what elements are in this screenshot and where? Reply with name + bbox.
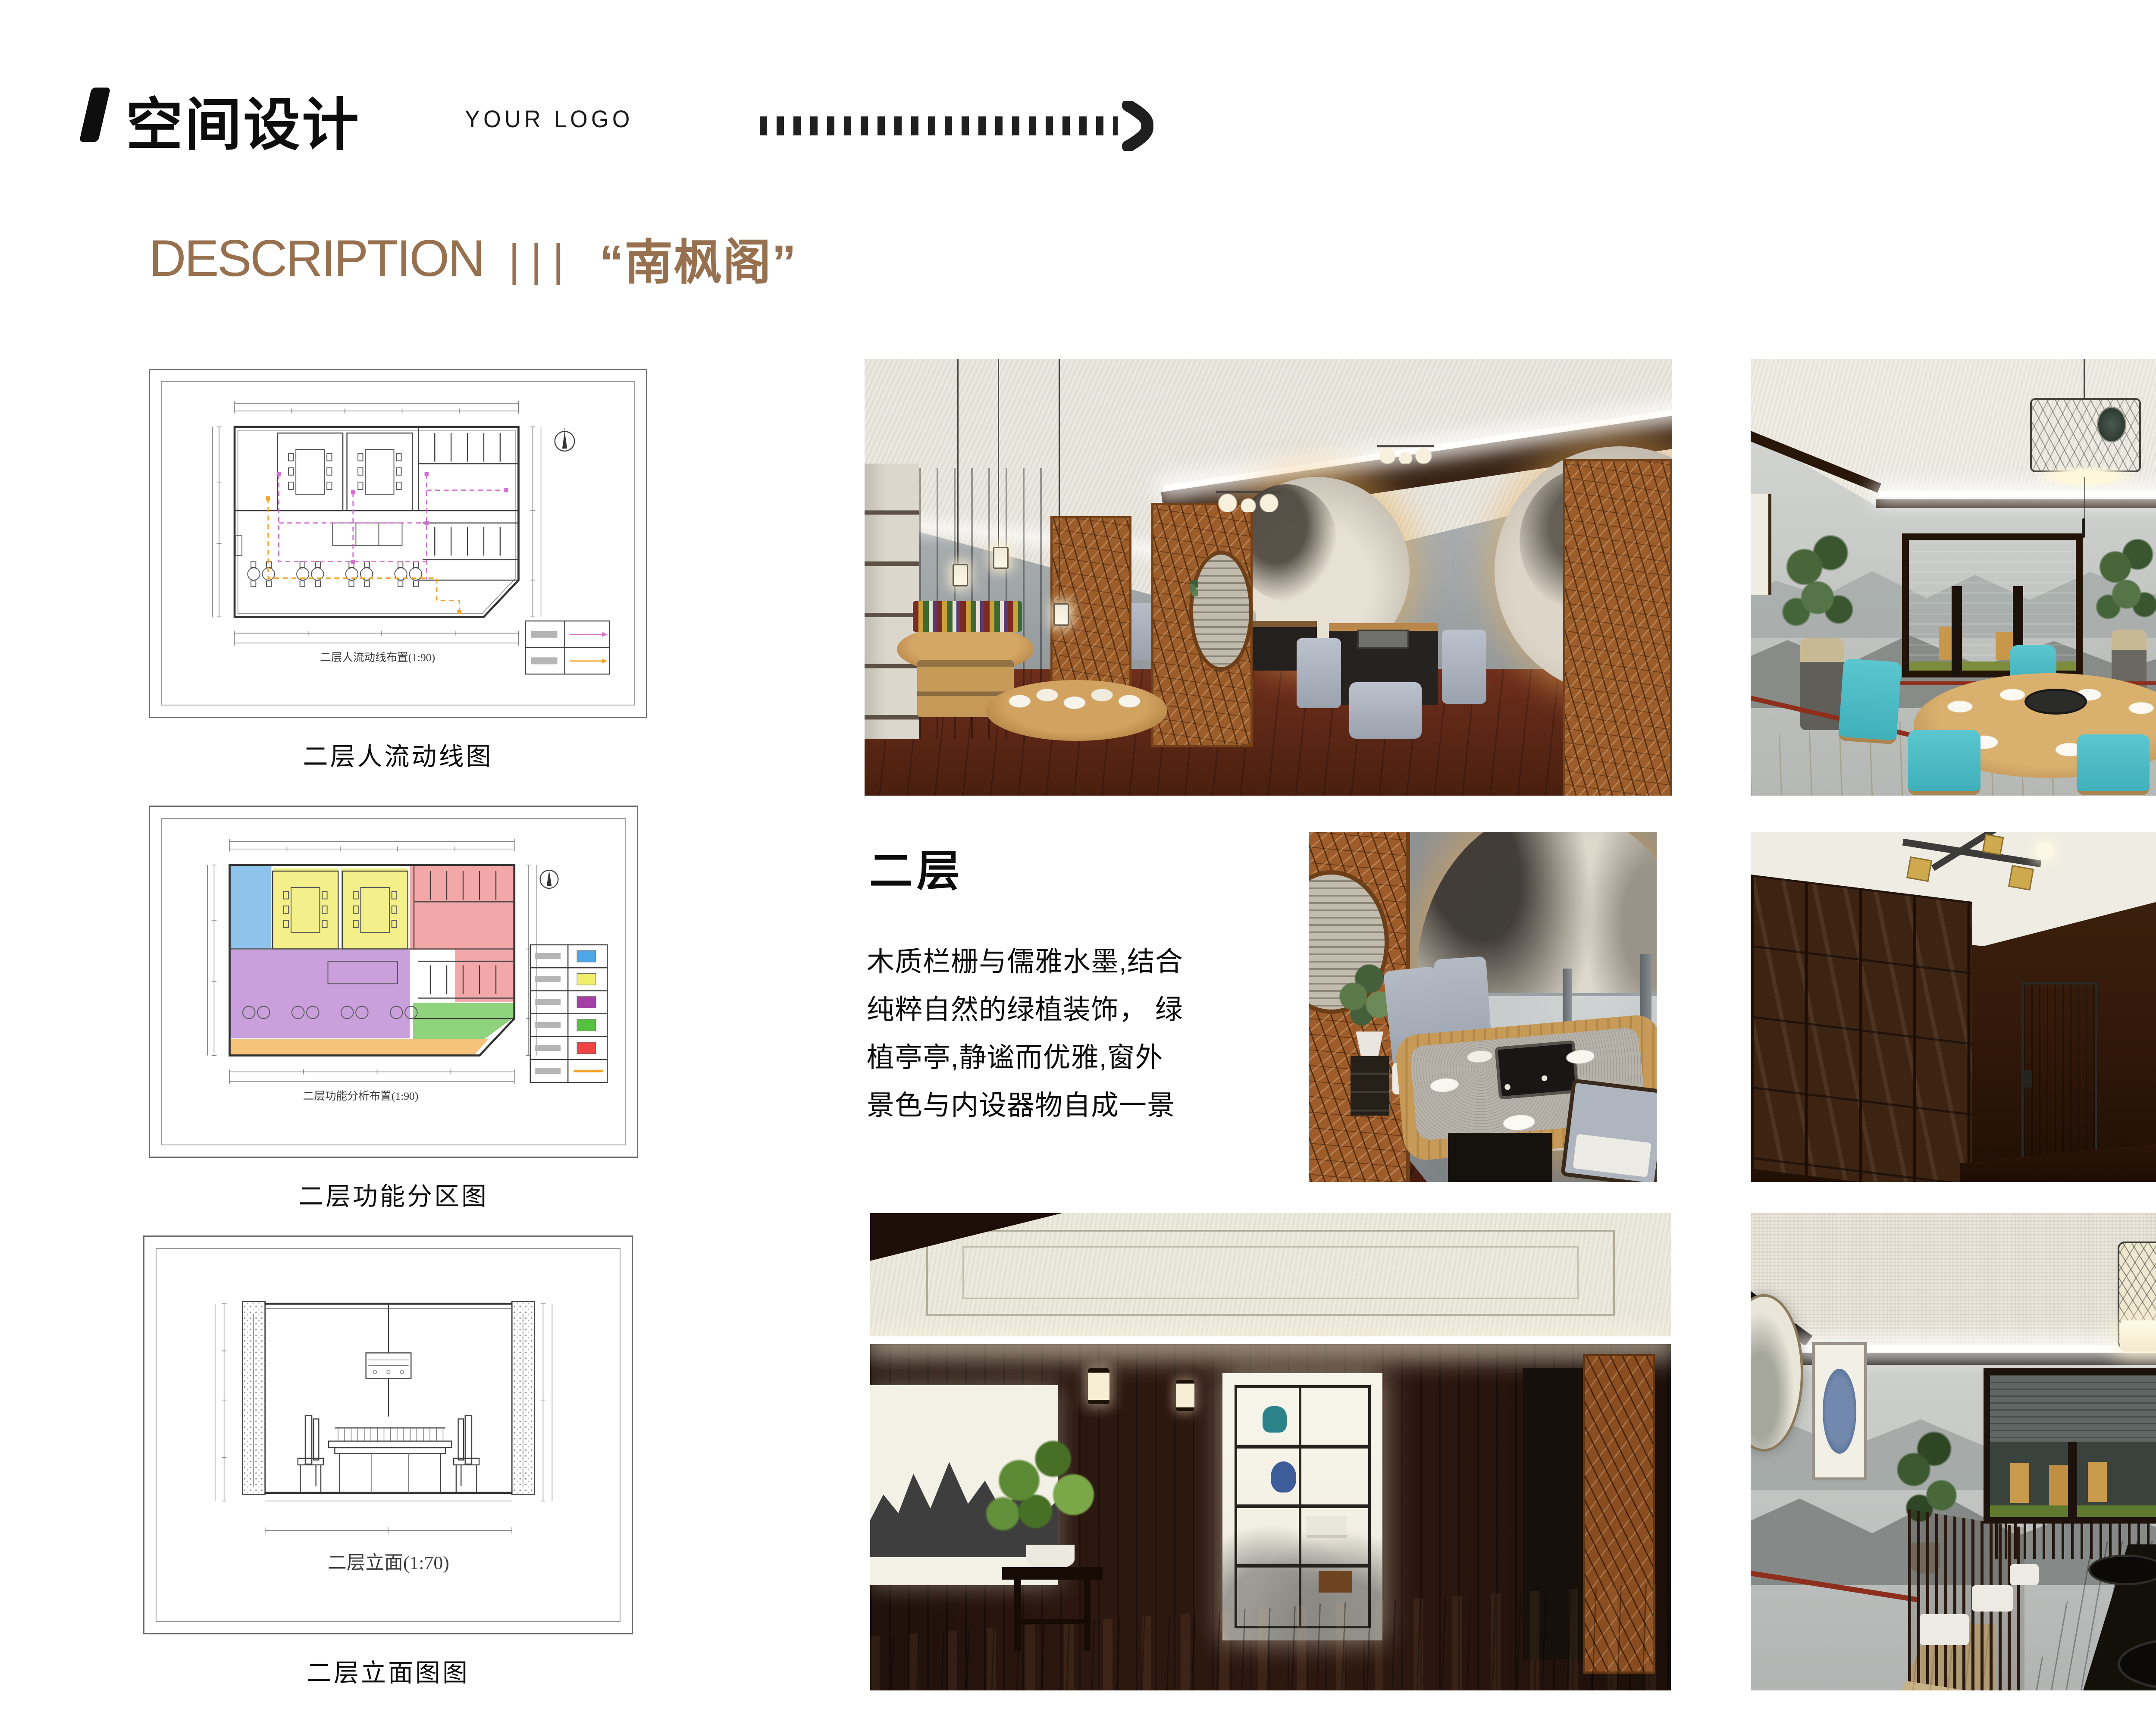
floor-description: 二层 木质栏栅与儒雅水墨,结合 纯粹自然的绿植装饰， 绿 植亭亭,静谧而优雅,窗…: [867, 836, 1302, 1129]
drawing-frame-inner: 二层人流动线布置(1:90): [161, 381, 635, 705]
lamp-shade: [1982, 834, 2004, 856]
moon-opening: [1189, 551, 1253, 671]
logo-text: YOUR LOGO: [465, 105, 633, 133]
paragraph-line: 纯粹自然的绿植装饰， 绿: [867, 986, 1302, 1034]
chair: [1442, 630, 1486, 704]
teal-vase: [1263, 1406, 1287, 1433]
lamp-tassel-rod: [2082, 518, 2085, 538]
lamp-shade: [1906, 856, 1932, 882]
drawing-frame-inner: 二层立面(1:70): [156, 1248, 620, 1622]
teal-chair: [2077, 734, 2150, 795]
bowl-display: [1006, 684, 1143, 715]
floor-paragraph: 木质栏栅与儒雅水墨,结合 纯粹自然的绿植装饰， 绿 植亭亭,静谧而优雅,窗外 景…: [867, 938, 1302, 1129]
potted-plant: [978, 1433, 1115, 1552]
drawing-circulation: 二层人流动线布置(1:90) 二层人流动线图: [149, 369, 647, 772]
pendant-cord: [998, 359, 999, 547]
pendant-rod: [2084, 359, 2085, 400]
ceiling-trim: [1876, 499, 2156, 508]
plant-pot: [1026, 1545, 1074, 1568]
window-mullion: [2068, 1442, 2078, 1523]
render-cabinet-corridor: [1751, 832, 2156, 1182]
slash-icon: [79, 88, 110, 142]
lamp-shade: [2008, 865, 2034, 891]
chair: [1349, 682, 1422, 739]
circulation-plan-svg: 二层人流动线布置(1:90): [168, 388, 628, 699]
hotpot-inset: [1357, 630, 1409, 648]
svg-text:二层立面(1:70): 二层立面(1:70): [328, 1552, 449, 1573]
cove-light: [870, 1336, 1671, 1345]
drawing-caption: 二层立面图图: [143, 1652, 633, 1689]
page-title: 空间设计: [126, 79, 360, 161]
chandelier: [1216, 472, 1281, 511]
bonsai-plant: [1189, 577, 1198, 601]
elevation-svg: 二层立面(1:70): [163, 1255, 614, 1615]
potted-plant: [2094, 533, 2156, 638]
drum-pendant-lamp: [2030, 398, 2141, 472]
bottle-display: [913, 601, 1022, 632]
wall-sconce: [1176, 1380, 1194, 1411]
page: 空间设计 YOUR LOGO DESCRIPTION ||| “南枫阁”: [0, 0, 2156, 1712]
paragraph-line: 木质栏栅与儒雅水墨,结合: [867, 938, 1302, 986]
plant-stand: [1351, 1056, 1389, 1116]
book-stack: [1307, 1516, 1347, 1538]
door-handle: [2023, 1070, 2033, 1088]
section-label: DESCRIPTION: [149, 229, 483, 288]
display-cabinets-left: [1751, 875, 1972, 1182]
render-long-table-room: [1751, 1213, 2156, 1690]
drawing-elevation: 二层立面(1:70) 二层立面图图: [143, 1235, 633, 1689]
render-private-room: [1751, 359, 2156, 796]
zoning-plan-svg: 二层功能分析布置(1:90): [168, 825, 619, 1138]
render-hotpot-table: [1309, 832, 1657, 1182]
drawing-frame: 二层立面(1:70): [143, 1235, 633, 1634]
chair: [1561, 1079, 1657, 1182]
section-divider: |||: [508, 235, 574, 286]
console-table: [1002, 1567, 1102, 1580]
svg-text:二层人流动线布置(1:90): 二层人流动线布置(1:90): [320, 651, 435, 664]
drawing-frame-inner: 二层功能分析布置(1:90): [161, 818, 626, 1145]
lattice-screen: [1563, 459, 1672, 796]
pendant-cord: [1059, 359, 1060, 603]
drawing-zoning: 二层功能分析布置(1:90): [149, 806, 638, 1212]
chair-cushion: [2010, 1564, 2039, 1586]
wood-box: [1319, 1571, 1352, 1593]
project-name: “南枫阁”: [599, 223, 797, 293]
teal-chair: [1838, 658, 1902, 744]
paragraph-line: 景色与内设器物自成一景: [867, 1082, 1302, 1129]
pendant-lamp: [953, 564, 968, 586]
chandelier: [1377, 429, 1434, 464]
blue-vase: [1271, 1461, 1296, 1493]
drawing-frame: 二层人流动线布置(1:90): [149, 369, 647, 718]
section-heading: DESCRIPTION ||| “南枫阁”: [149, 223, 797, 293]
window-mullion: [1952, 586, 1962, 678]
hotpot-inset: [2024, 689, 2087, 715]
floor-heading: 二层: [869, 836, 1302, 898]
wall-art: [1751, 494, 1771, 595]
teal-chair: [1908, 730, 1981, 795]
drawing-caption: 二层人流动线图: [149, 736, 647, 772]
lamp-glow-band: [2120, 1320, 2156, 1351]
pendant-cord: [957, 359, 959, 564]
lamp-globe: [2036, 842, 2054, 860]
arrow-head-icon: [1107, 101, 1181, 151]
lamp-glow: [2036, 466, 2135, 488]
render-lobby-mural: [870, 1213, 1671, 1690]
chair: [1297, 638, 1341, 708]
framed-wall-art: [1812, 1342, 1867, 1480]
cove-light: [1879, 491, 2156, 497]
chair-cushion: [1920, 1614, 1969, 1645]
wall-sconce: [1088, 1368, 1109, 1404]
chair-cushion: [1972, 1585, 2013, 1612]
render-dining-hall: [865, 359, 1672, 796]
pendant-lamp: [993, 547, 1009, 569]
drawing-caption: 二层功能分区图: [149, 1176, 638, 1212]
door: [2021, 982, 2097, 1179]
console-legs: [1014, 1580, 1090, 1651]
svg-text:二层功能分析布置(1:90): 二层功能分析布置(1:90): [303, 1090, 419, 1102]
pendant-lamp: [1053, 603, 1069, 626]
display-shelf: [865, 464, 919, 739]
potted-plant: [1780, 529, 1861, 647]
dotted-line: [760, 116, 1118, 135]
ceiling-tray-line: [962, 1246, 1579, 1299]
table-base: [1448, 1133, 1552, 1182]
paragraph-line: 植亭亭,静谧而优雅,窗外: [867, 1034, 1302, 1082]
drawing-frame: 二层功能分析布置(1:90): [149, 806, 638, 1158]
lamp-tassel: [2084, 477, 2085, 520]
